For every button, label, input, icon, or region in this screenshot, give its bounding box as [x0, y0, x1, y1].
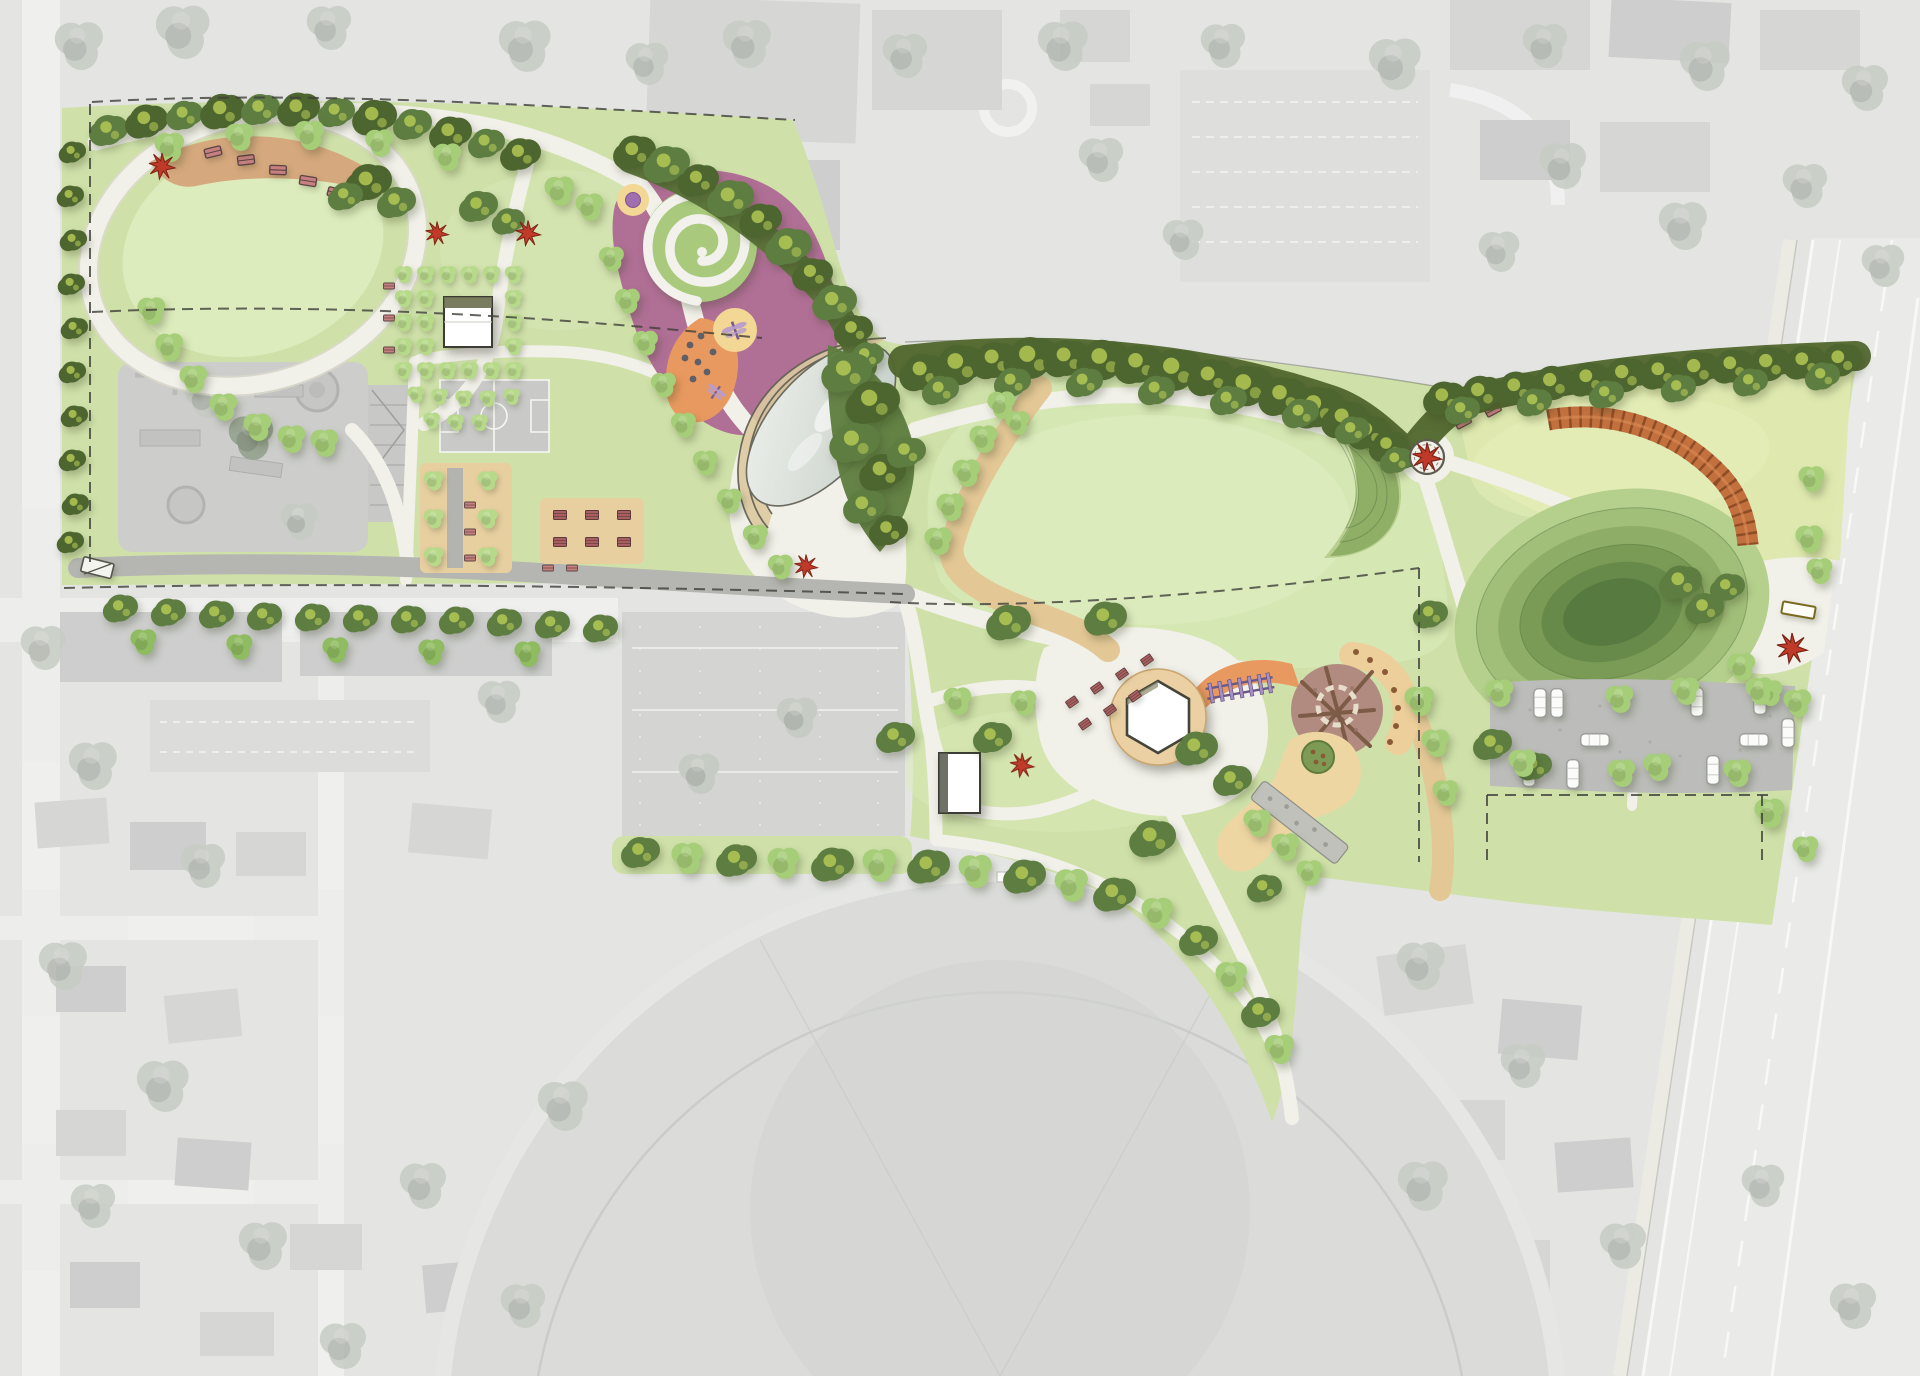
- site-plan-svg: [0, 0, 1920, 1376]
- sand-play-circle-small: [617, 184, 649, 216]
- existing-parking-lot: [622, 612, 905, 836]
- purple-play-dome: [626, 193, 641, 208]
- site-plan-stage: [0, 0, 1920, 1376]
- bocce-gravel-strip: [447, 468, 463, 568]
- picnic-plaza: [540, 498, 644, 571]
- star-marker-junction: [1410, 440, 1444, 474]
- log-ring: [1302, 741, 1334, 773]
- restroom-building-south: [939, 753, 980, 813]
- south-vertical-path: [930, 730, 936, 838]
- restroom-building-north: [444, 297, 492, 347]
- sand-play-circle-large: [713, 308, 757, 352]
